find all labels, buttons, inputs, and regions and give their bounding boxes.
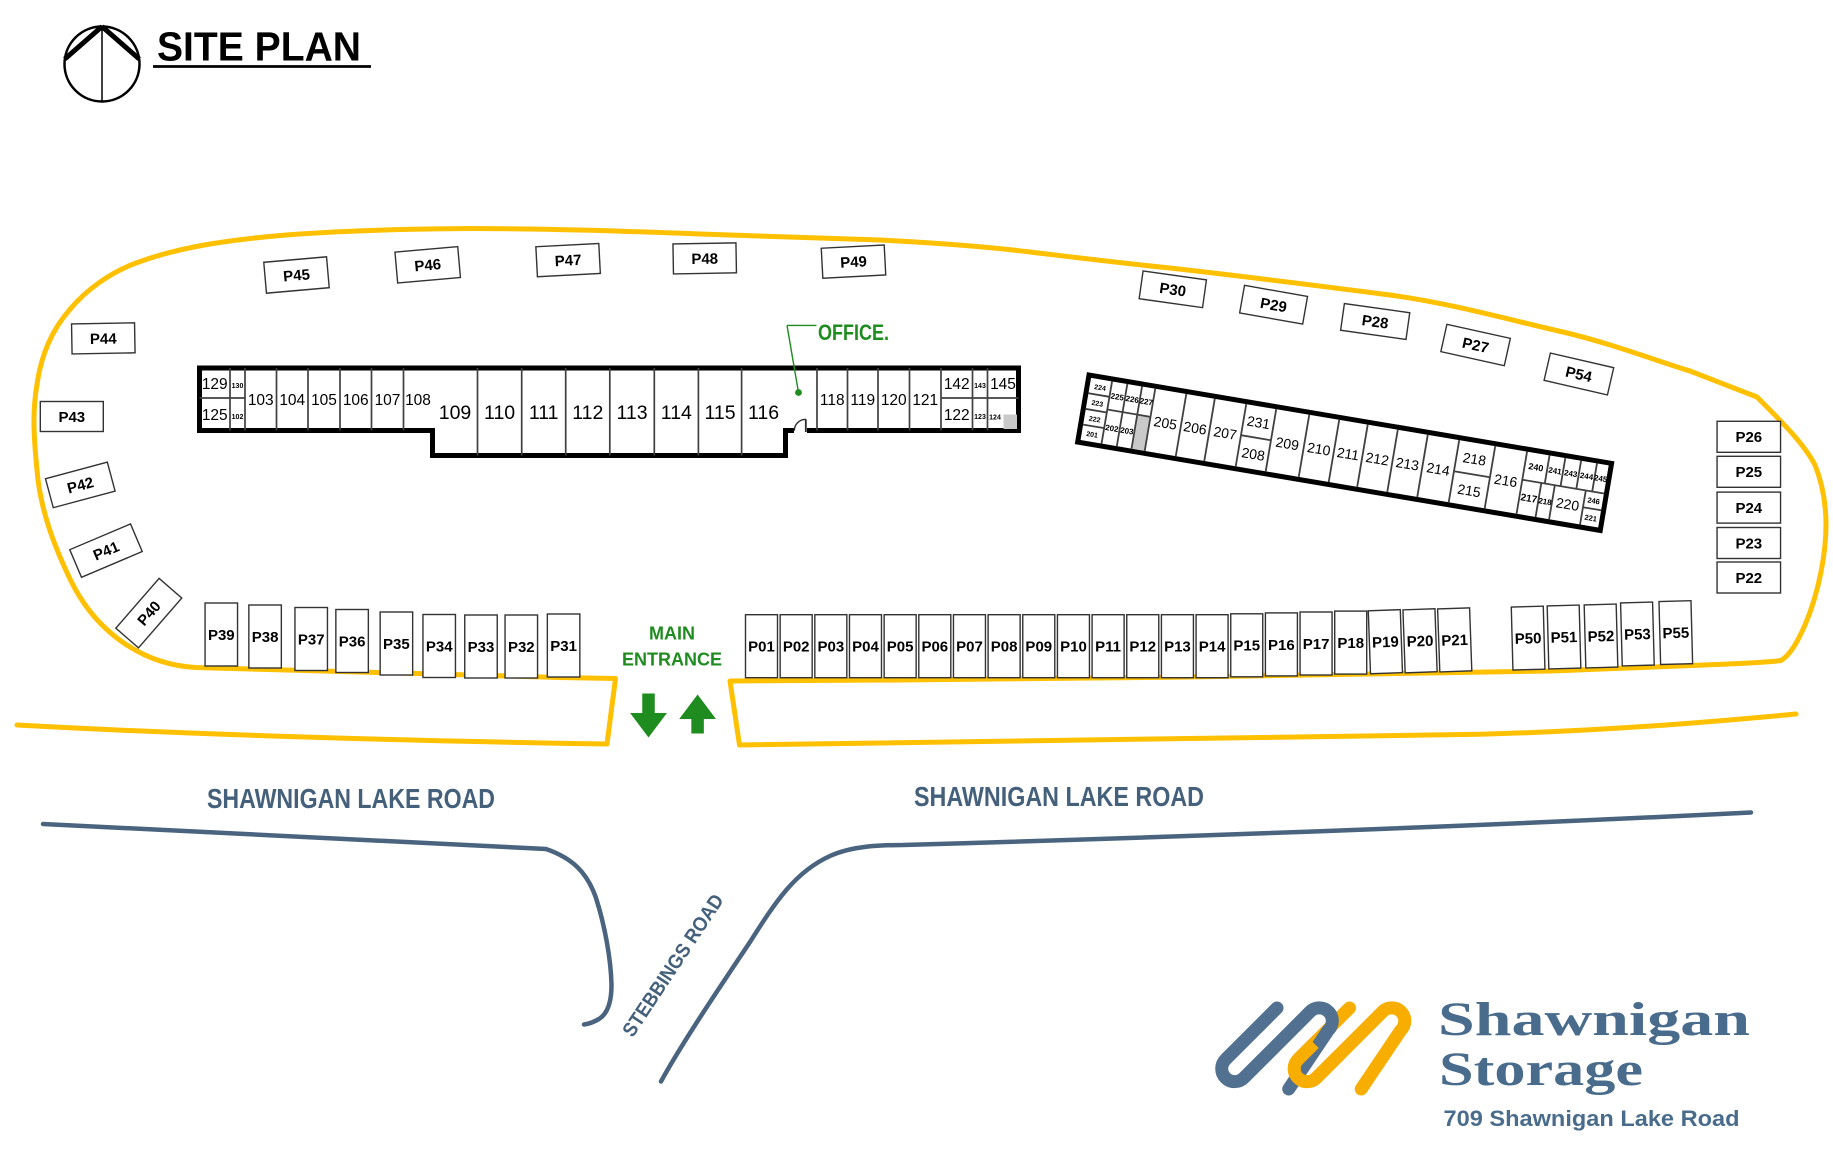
svg-text:P55: P55 (1662, 625, 1689, 643)
svg-text:P12: P12 (1129, 639, 1156, 656)
svg-text:103: 103 (248, 392, 274, 409)
svg-text:115: 115 (704, 402, 735, 424)
svg-text:MAIN: MAIN (649, 624, 695, 644)
svg-text:P14: P14 (1199, 639, 1226, 656)
svg-text:P49: P49 (840, 253, 868, 271)
svg-text:P34: P34 (426, 638, 453, 655)
svg-text:P52: P52 (1587, 628, 1614, 646)
svg-text:120: 120 (881, 392, 907, 409)
svg-text:P39: P39 (208, 627, 235, 644)
svg-text:P44: P44 (90, 331, 118, 348)
svg-text:122: 122 (944, 407, 970, 424)
svg-text:SHAWNIGAN LAKE ROAD: SHAWNIGAN LAKE ROAD (914, 781, 1204, 812)
svg-text:102: 102 (232, 414, 244, 421)
svg-text:143: 143 (974, 383, 986, 390)
svg-text:P16: P16 (1268, 637, 1295, 654)
svg-text:P22: P22 (1735, 570, 1762, 587)
svg-text:P10: P10 (1060, 639, 1087, 656)
svg-text:P35: P35 (383, 636, 410, 653)
svg-text:P53: P53 (1624, 626, 1651, 644)
svg-text:112: 112 (572, 402, 603, 424)
svg-text:142: 142 (944, 376, 970, 393)
svg-text:P36: P36 (339, 633, 366, 650)
svg-text:P37: P37 (298, 631, 325, 648)
svg-text:STEBBINGS ROAD: STEBBINGS ROAD (619, 890, 729, 1041)
svg-text:P38: P38 (252, 629, 279, 646)
svg-text:116: 116 (748, 402, 779, 424)
svg-text:105: 105 (311, 392, 337, 409)
svg-text:P05: P05 (887, 639, 914, 656)
svg-text:P17: P17 (1303, 636, 1330, 653)
svg-text:113: 113 (616, 402, 647, 424)
svg-text:Shawnigan: Shawnigan (1438, 993, 1750, 1046)
svg-text:OFFICE.: OFFICE. (818, 320, 889, 345)
svg-text:P11: P11 (1095, 639, 1121, 656)
svg-text:119: 119 (850, 392, 875, 409)
svg-text:P48: P48 (691, 251, 718, 268)
svg-text:P23: P23 (1735, 535, 1762, 552)
svg-text:P33: P33 (468, 639, 495, 656)
svg-text:129: 129 (202, 376, 228, 393)
svg-text:P06: P06 (921, 639, 948, 656)
svg-text:P51: P51 (1550, 629, 1577, 647)
svg-text:123: 123 (974, 414, 986, 421)
svg-text:P07: P07 (956, 639, 983, 656)
svg-text:Storage: Storage (1439, 1043, 1643, 1096)
svg-text:111: 111 (529, 402, 559, 424)
svg-text:109: 109 (439, 402, 472, 424)
svg-text:P32: P32 (508, 639, 535, 656)
svg-text:P25: P25 (1735, 464, 1762, 481)
svg-text:P46: P46 (414, 256, 442, 275)
svg-text:110: 110 (484, 402, 515, 424)
svg-text:114: 114 (661, 402, 692, 424)
svg-text:P21: P21 (1441, 632, 1468, 650)
svg-text:P26: P26 (1735, 429, 1762, 446)
svg-text:P02: P02 (783, 639, 810, 656)
svg-text:709 Shawnigan Lake Road: 709 Shawnigan Lake Road (1444, 1106, 1740, 1131)
svg-text:P20: P20 (1406, 633, 1433, 651)
svg-text:P19: P19 (1372, 634, 1399, 652)
svg-text:P03: P03 (817, 639, 844, 656)
svg-text:P01: P01 (748, 639, 775, 656)
svg-text:125: 125 (202, 407, 228, 424)
svg-text:P24: P24 (1735, 500, 1762, 517)
svg-text:ENTRANCE: ENTRANCE (622, 650, 722, 670)
svg-text:P04: P04 (852, 639, 879, 656)
svg-text:104: 104 (279, 392, 305, 409)
svg-text:SITE PLAN: SITE PLAN (157, 24, 361, 70)
svg-text:P15: P15 (1233, 638, 1260, 655)
svg-text:118: 118 (820, 392, 845, 409)
svg-text:121: 121 (912, 392, 938, 409)
svg-text:130: 130 (232, 383, 244, 390)
svg-text:P18: P18 (1337, 635, 1364, 652)
svg-text:SHAWNIGAN LAKE ROAD: SHAWNIGAN LAKE ROAD (207, 783, 495, 814)
svg-text:P08: P08 (991, 639, 1018, 656)
svg-text:124: 124 (989, 415, 1001, 422)
svg-text:107: 107 (375, 392, 401, 409)
svg-text:108: 108 (405, 392, 431, 409)
svg-text:106: 106 (343, 392, 369, 409)
svg-text:P47: P47 (554, 252, 582, 270)
svg-text:P09: P09 (1025, 639, 1052, 656)
svg-text:P13: P13 (1164, 639, 1191, 656)
svg-text:P50: P50 (1515, 630, 1542, 648)
svg-text:P31: P31 (550, 638, 577, 655)
svg-text:P45: P45 (283, 266, 311, 285)
svg-text:145: 145 (990, 376, 1016, 393)
svg-text:P43: P43 (58, 409, 85, 426)
